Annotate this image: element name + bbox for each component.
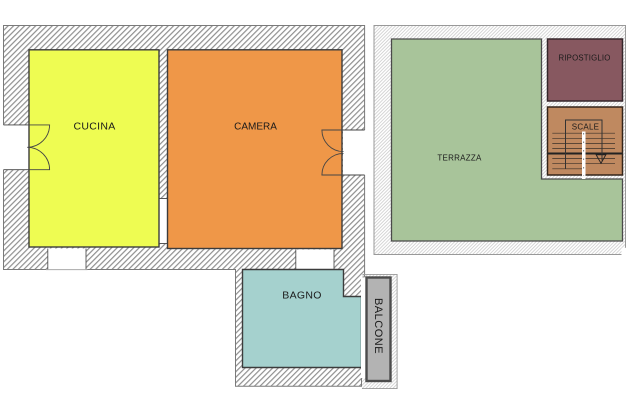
svg-text:CAMERA: CAMERA [234, 122, 277, 133]
svg-text:RIPOSTIGLIO: RIPOSTIGLIO [558, 53, 610, 62]
svg-text:BALCONE: BALCONE [372, 298, 384, 354]
svg-text:BAGNO: BAGNO [282, 290, 321, 302]
svg-text:SCALE: SCALE [572, 123, 599, 132]
svg-text:TERRAZZA: TERRAZZA [437, 153, 482, 162]
svg-text:CUCINA: CUCINA [73, 121, 115, 133]
